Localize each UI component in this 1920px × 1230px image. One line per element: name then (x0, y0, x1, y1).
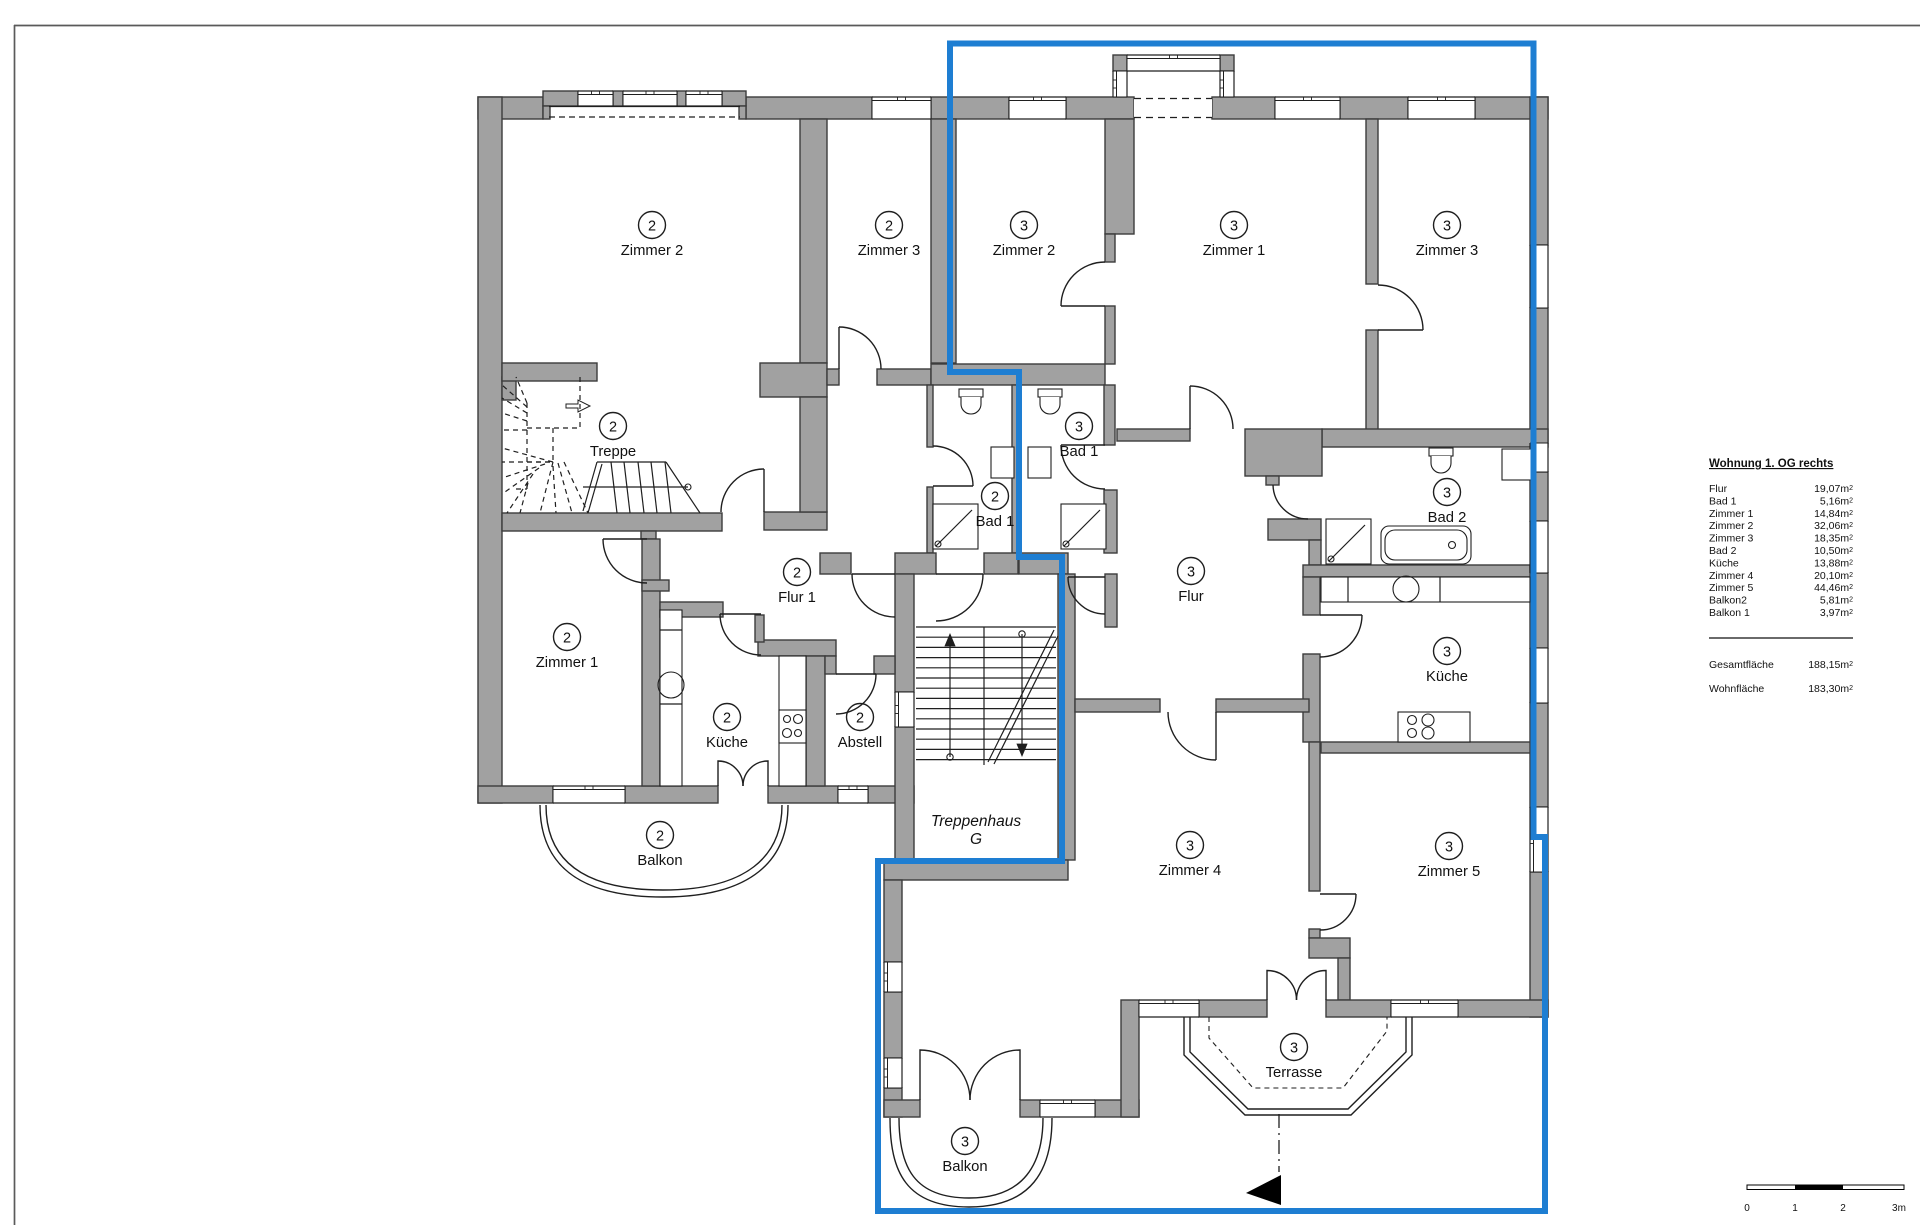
svg-text:3: 3 (1445, 840, 1453, 856)
svg-text:Zimmer 5: Zimmer 5 (1418, 864, 1480, 880)
svg-text:Zimmer 1: Zimmer 1 (1709, 508, 1753, 520)
svg-text:2: 2 (1840, 1203, 1846, 1214)
svg-text:Gesamtfläche: Gesamtfläche (1709, 659, 1774, 671)
svg-text:Bad 2: Bad 2 (1428, 510, 1467, 526)
svg-text:3: 3 (1290, 1041, 1298, 1057)
svg-text:0: 0 (1744, 1203, 1750, 1214)
svg-text:Zimmer 3: Zimmer 3 (1709, 533, 1753, 545)
svg-text:Wohnung 1. OG rechts: Wohnung 1. OG rechts (1709, 458, 1833, 470)
svg-text:2: 2 (885, 219, 893, 235)
svg-text:Flur 1: Flur 1 (778, 590, 816, 606)
svg-text:Abstell: Abstell (838, 735, 882, 751)
svg-text:Flur: Flur (1709, 483, 1728, 495)
svg-text:Zimmer 4: Zimmer 4 (1709, 570, 1753, 582)
svg-text:2: 2 (648, 219, 656, 235)
svg-text:5,16m2: 5,16m2 (1820, 495, 1853, 507)
svg-text:G: G (970, 831, 982, 848)
svg-text:Balkon 1: Balkon 1 (1709, 607, 1750, 619)
svg-text:2: 2 (793, 566, 801, 582)
svg-text:Balkon: Balkon (637, 853, 682, 869)
svg-text:2: 2 (723, 711, 731, 727)
svg-text:Bad 1: Bad 1 (1060, 444, 1099, 460)
svg-text:Zimmer 2: Zimmer 2 (993, 243, 1055, 259)
svg-text:3: 3 (1020, 219, 1028, 235)
svg-text:3: 3 (1186, 839, 1194, 855)
svg-text:Küche: Küche (1709, 557, 1739, 569)
svg-text:14,84m2: 14,84m2 (1814, 508, 1853, 520)
svg-text:3: 3 (1443, 486, 1451, 502)
svg-text:20,10m2: 20,10m2 (1814, 570, 1853, 582)
svg-text:183,30m2: 183,30m2 (1808, 683, 1853, 695)
svg-text:2: 2 (856, 711, 864, 727)
svg-text:Zimmer 1: Zimmer 1 (536, 655, 598, 671)
svg-text:Küche: Küche (706, 735, 748, 751)
svg-text:Bad 1: Bad 1 (976, 514, 1015, 530)
svg-text:Zimmer 3: Zimmer 3 (858, 243, 920, 259)
svg-text:Terrasse: Terrasse (1266, 1065, 1323, 1081)
svg-text:18,35m2: 18,35m2 (1814, 533, 1853, 545)
svg-text:Flur: Flur (1178, 589, 1204, 605)
svg-text:Küche: Küche (1426, 669, 1468, 685)
svg-text:3m: 3m (1892, 1203, 1906, 1214)
svg-text:Zimmer 5: Zimmer 5 (1709, 582, 1753, 594)
svg-text:2: 2 (991, 490, 999, 506)
svg-text:3: 3 (1443, 645, 1451, 661)
svg-text:44,46m2: 44,46m2 (1814, 582, 1853, 594)
svg-text:3: 3 (1075, 420, 1083, 436)
svg-text:32,06m2: 32,06m2 (1814, 520, 1853, 532)
svg-text:1: 1 (1792, 1203, 1798, 1214)
svg-text:Treppe: Treppe (590, 444, 636, 460)
svg-text:3: 3 (961, 1135, 969, 1151)
svg-text:2: 2 (563, 631, 571, 647)
svg-text:2: 2 (656, 829, 664, 845)
svg-text:Balkon2: Balkon2 (1709, 595, 1747, 607)
svg-text:Bad 2: Bad 2 (1709, 545, 1737, 557)
svg-text:Wohnfläche: Wohnfläche (1709, 683, 1764, 695)
svg-text:5,81m2: 5,81m2 (1820, 595, 1853, 607)
svg-text:3,97m2: 3,97m2 (1820, 607, 1853, 619)
svg-text:Bad 1: Bad 1 (1709, 495, 1737, 507)
svg-text:10,50m2: 10,50m2 (1814, 545, 1853, 557)
svg-text:Balkon: Balkon (942, 1159, 987, 1175)
svg-text:Zimmer 4: Zimmer 4 (1159, 863, 1221, 879)
svg-text:Zimmer 2: Zimmer 2 (1709, 520, 1753, 532)
svg-text:Zimmer 3: Zimmer 3 (1416, 243, 1478, 259)
svg-text:19,07m2: 19,07m2 (1814, 483, 1853, 495)
svg-text:3: 3 (1187, 565, 1195, 581)
svg-text:2: 2 (609, 420, 617, 436)
svg-text:Zimmer 2: Zimmer 2 (621, 243, 683, 259)
svg-text:3: 3 (1443, 219, 1451, 235)
svg-text:Treppenhaus: Treppenhaus (931, 813, 1021, 830)
svg-text:188,15m2: 188,15m2 (1808, 659, 1853, 671)
svg-text:13,88m2: 13,88m2 (1814, 557, 1853, 569)
svg-text:Zimmer 1: Zimmer 1 (1203, 243, 1265, 259)
svg-text:3: 3 (1230, 219, 1238, 235)
